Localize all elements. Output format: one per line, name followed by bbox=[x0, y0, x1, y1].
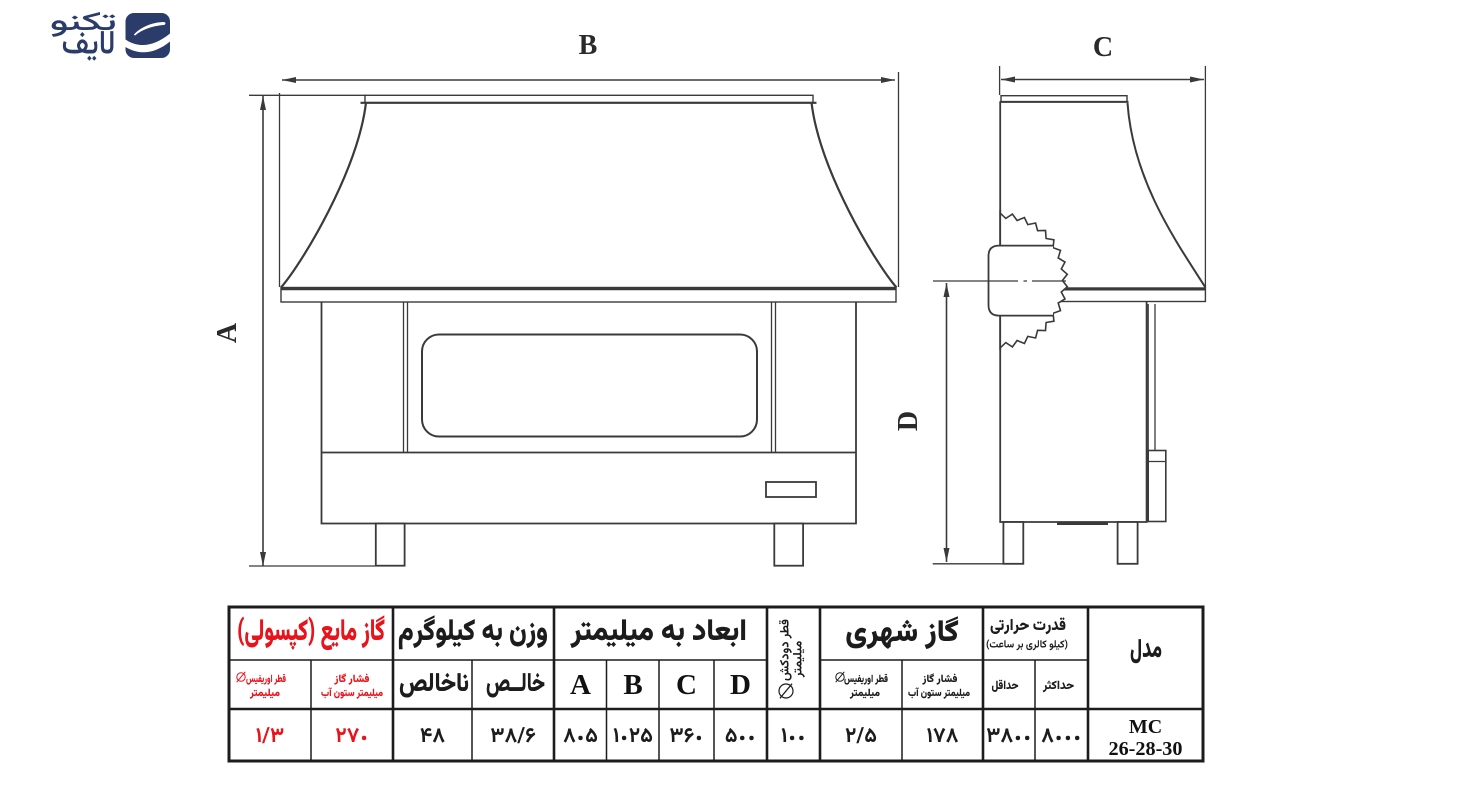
svg-text:A: A bbox=[212, 322, 243, 343]
svg-text:C: C bbox=[1093, 32, 1113, 63]
svg-text:D: D bbox=[893, 411, 924, 431]
svg-text:B: B bbox=[579, 30, 598, 61]
